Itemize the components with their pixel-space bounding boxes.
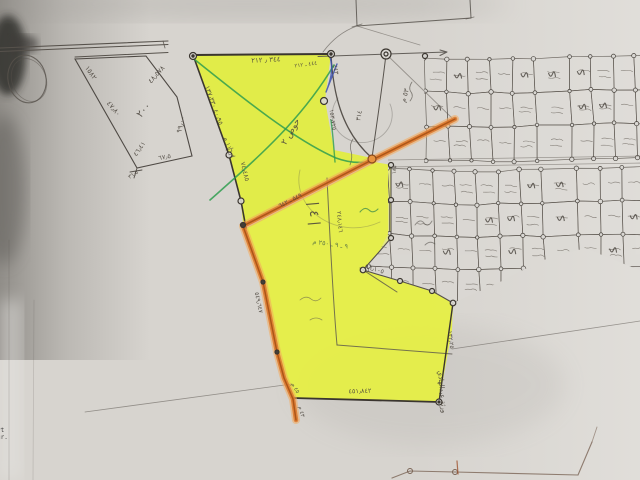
corner-print-line1: yt — [0, 427, 8, 434]
grid-corner-node — [632, 53, 636, 57]
grid-corner-node — [570, 123, 573, 126]
grid-corner-node — [599, 233, 603, 237]
survey-node — [238, 198, 244, 204]
grid-corner-node — [533, 91, 537, 95]
grid-corner-node — [620, 198, 624, 202]
survey-node — [450, 300, 456, 306]
survey-node — [241, 223, 246, 228]
grid-corner-node — [576, 233, 580, 237]
parcel-cell — [577, 201, 601, 235]
grid-corner-node — [510, 91, 514, 95]
road-junction-node — [368, 155, 376, 163]
upper-parcel-top-edge — [193, 54, 331, 55]
parcel-cell — [542, 201, 578, 237]
grid-corner-node — [498, 234, 502, 238]
grid-corner-node — [433, 266, 437, 270]
grid-corner-node — [613, 156, 617, 160]
survey-node — [275, 350, 279, 354]
corner-print-line2: gr. — [0, 434, 8, 441]
parcel-cell — [468, 92, 491, 128]
parcel-cell — [521, 203, 543, 237]
grid-corner-node — [431, 169, 434, 172]
parcel-cell — [576, 168, 600, 201]
grid-corner-node — [541, 202, 544, 205]
grid-corner-node — [531, 57, 536, 62]
grid-corner-node — [521, 233, 525, 237]
grid-corner-node — [489, 125, 493, 129]
parcel-cell — [500, 235, 523, 268]
parcel-cell — [535, 91, 572, 125]
grid-corner-node — [634, 121, 638, 125]
grid-corner-node — [408, 200, 412, 204]
parcel-cell — [434, 203, 457, 237]
grid-corner-node — [475, 203, 479, 207]
parcel-cell — [533, 57, 569, 93]
grid-corner-node — [409, 234, 413, 238]
parcel-cell — [594, 123, 616, 159]
parcel-cell — [410, 202, 434, 237]
grid-corner-node — [519, 202, 523, 206]
grid-corner-node — [620, 165, 624, 169]
grid-corner-node — [511, 57, 515, 61]
grid-corner-node — [576, 199, 580, 203]
survey-node — [389, 236, 394, 241]
grid-corner-node — [433, 234, 437, 238]
parcel-cell — [614, 123, 637, 159]
grid-corner-node — [513, 125, 516, 128]
grid-corner-node — [467, 125, 471, 129]
handwritten-label: ٣٤٤ ٫ ٢١٢ — [251, 55, 281, 65]
grid-corner-node — [454, 203, 457, 206]
grid-corner-node — [477, 267, 481, 271]
parcel-cell — [467, 59, 491, 94]
survey-node — [423, 54, 428, 59]
grid-corner-node — [633, 88, 637, 92]
parcel-cell — [491, 92, 514, 128]
grid-corner-node — [541, 235, 545, 239]
grid-corner-node — [592, 157, 596, 161]
survey-node — [430, 289, 435, 294]
parcel-cell — [477, 203, 500, 237]
parcel-cell — [600, 167, 622, 201]
grid-corner-node — [456, 268, 460, 272]
handwritten-label: ٤٥١٫٨٤٢ — [348, 387, 372, 396]
scanned-map-photo: ١٥٨٢٤٧٫٨٠٤٨٫٥٧٨٩٩٫٠٠٢٠٠٤٦٫٤١٦٧٫٥٣٦٫٥٣٤٤ … — [0, 0, 640, 480]
parcel-cell — [590, 56, 614, 90]
survey-node-ring — [384, 52, 388, 56]
parcel-cell — [512, 59, 535, 94]
parcel-cell — [424, 58, 447, 92]
parcel-cell — [448, 126, 471, 160]
parcel-cell — [475, 172, 498, 205]
grid-corner-node — [411, 266, 415, 270]
grid-corner-node — [496, 170, 500, 174]
grid-corner-node — [476, 236, 479, 239]
parcel-cell — [446, 59, 468, 94]
grid-corner-node — [517, 167, 522, 172]
grid-corner-node — [589, 87, 593, 91]
survey-node — [261, 280, 265, 284]
parcel-cell — [623, 234, 640, 267]
parcel-cell — [514, 125, 537, 162]
parcel-cell — [637, 124, 640, 159]
parcel-cell — [489, 59, 512, 94]
parcel-cell — [512, 93, 537, 127]
survey-node-dot — [330, 53, 332, 55]
grid-corner-node — [539, 167, 543, 171]
survey-node — [389, 198, 394, 203]
grid-corner-node — [470, 159, 473, 162]
parcel-cell — [613, 56, 635, 91]
grid-corner-node — [612, 121, 616, 125]
parcel-cell — [457, 237, 479, 270]
parcel-cell — [622, 167, 640, 201]
grid-corner-node — [489, 90, 493, 94]
corner-print-fragment: yt gr. — [0, 427, 8, 441]
grid-corner-node — [570, 157, 574, 161]
parcel-cell — [409, 169, 433, 203]
grid-corner-node — [465, 57, 469, 61]
grid-corner-node — [473, 170, 477, 174]
parcel-cell — [614, 90, 637, 124]
handwritten-label: | ٤ | — [305, 201, 322, 226]
parcel-cell — [433, 171, 456, 205]
parcel-cell — [389, 201, 411, 236]
grid-corner-node — [592, 122, 595, 125]
grid-corner-node — [499, 267, 503, 271]
handwritten-label: ١٨٥ — [392, 165, 399, 174]
grid-corner-node — [598, 199, 603, 204]
grid-corner-node — [389, 265, 393, 269]
grid-corner-node — [588, 55, 592, 59]
grid-corner-node — [535, 159, 539, 163]
grid-corner-node — [491, 160, 495, 164]
grid-corner-node — [574, 166, 578, 170]
grid-corner-node — [568, 55, 572, 59]
parcel-cell — [454, 171, 477, 205]
grid-corner-node — [432, 202, 435, 205]
grid-corner-node — [452, 169, 456, 173]
survey-node — [398, 279, 403, 284]
grid-corner-node — [455, 235, 459, 239]
grid-corner-node — [598, 166, 602, 170]
survey-map-canvas: ١٥٨٢٤٧٫٨٠٤٨٫٥٧٨٩٩٫٠٠٢٠٠٤٦٫٤١٦٧٫٥٣٦٫٥٣٤٤ … — [0, 0, 640, 480]
left-bottom-light — [0, 300, 22, 480]
parcel-cell — [469, 127, 493, 162]
parcel-cell — [491, 127, 514, 162]
grid-corner-node — [512, 160, 516, 164]
grid-corner-node — [445, 57, 449, 61]
survey-node-dot — [192, 55, 194, 57]
parcel-cell — [537, 125, 572, 161]
grid-corner-node — [497, 201, 500, 204]
parcel-cell — [498, 169, 521, 203]
parcel-cell — [600, 200, 623, 234]
grid-corner-node — [621, 232, 625, 236]
grid-corner-node — [466, 92, 470, 96]
grid-corner-node — [408, 167, 412, 171]
grid-corner-node — [612, 88, 616, 92]
grid-corner-node — [611, 54, 615, 58]
grid-corner-node — [445, 90, 448, 93]
grid-corner-node — [535, 123, 538, 126]
grid-corner-node — [488, 58, 491, 61]
parcel-cell — [456, 205, 477, 238]
survey-node — [321, 98, 328, 105]
parcel-cell — [412, 236, 435, 268]
grid-corner-node — [568, 89, 571, 92]
parcel-cell — [477, 236, 501, 269]
